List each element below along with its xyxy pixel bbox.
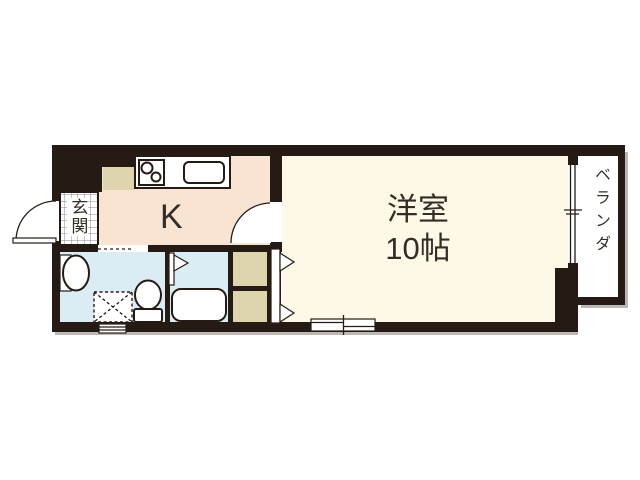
entrance-label: 玄関 [67, 198, 87, 236]
main-room-name: 洋室 [338, 190, 498, 229]
wall-veranda-bottom [578, 297, 625, 305]
sink-icon [184, 162, 224, 183]
floorplan-drawing [0, 0, 640, 480]
veranda-label-text: ベランダ [592, 166, 609, 258]
wall-top [52, 145, 625, 156]
closet-lower [233, 291, 267, 322]
veranda-label: ベランダ [588, 166, 612, 258]
wall-above-window [568, 156, 578, 165]
refrigerator-space [103, 167, 134, 190]
kitchen-doorway-gap [270, 202, 282, 242]
wall-block-left [52, 156, 102, 192]
closet-door-panel [271, 249, 280, 323]
entrance-label-text: 玄関 [67, 198, 88, 236]
bath-door-panel [169, 253, 174, 285]
bathtub-icon [172, 289, 226, 321]
wall-left-lower [52, 241, 60, 332]
stove-burner-large [142, 163, 153, 174]
washroom-window [99, 324, 126, 333]
entrance-door-leaf [13, 238, 56, 243]
wall-left-above-door [52, 192, 60, 201]
main-room-size: 10帖 [338, 229, 498, 268]
shadow-bottom [55, 332, 578, 335]
toilet-tank [134, 309, 162, 322]
entrance-door-arc [16, 201, 56, 241]
wall-veranda-right [618, 147, 625, 305]
main-room-label: 洋室 10帖 [338, 190, 498, 269]
toilet-bowl-icon [135, 281, 161, 310]
wash-basin-icon [63, 256, 89, 291]
kitchen-label: K [160, 198, 183, 237]
closet-upper [233, 252, 267, 286]
kitchen-label-text: K [160, 198, 183, 236]
wall-kitchen-room-upper [270, 156, 282, 202]
wall-below-window [568, 263, 578, 268]
floorplan-canvas: 玄関 K 洋室 10帖 ベランダ [0, 0, 640, 480]
shadow-right [625, 152, 628, 308]
stove-burner-small [152, 173, 161, 182]
shadow-veranda-bottom [581, 305, 625, 308]
